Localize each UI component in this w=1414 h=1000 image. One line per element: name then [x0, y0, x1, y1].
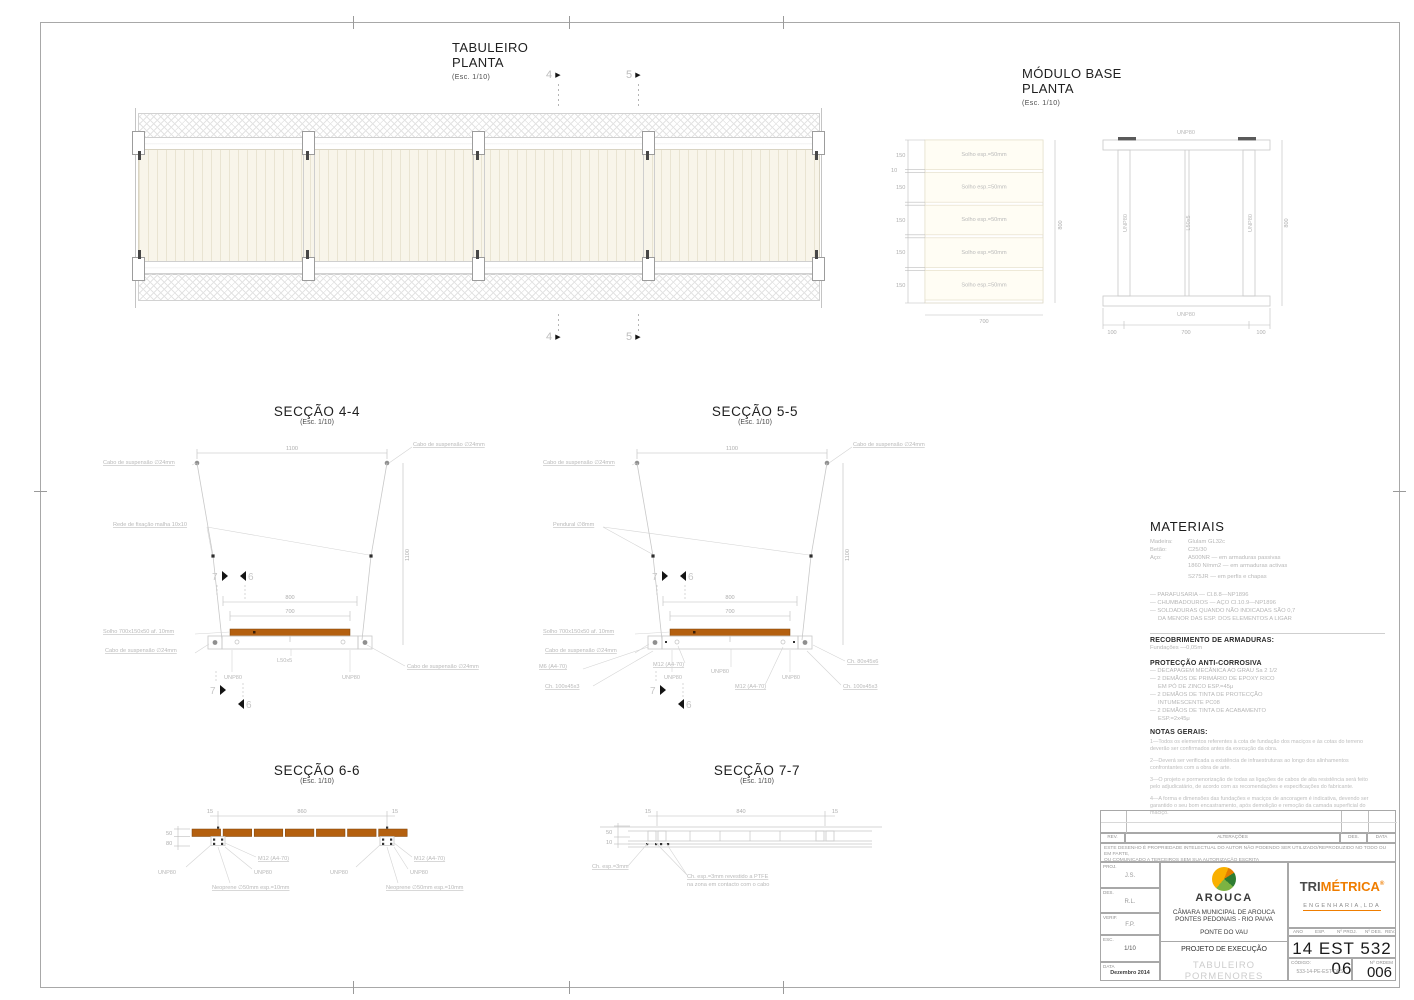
sec77-title: SECÇÃO 7-7 (Esc. 1/10): [677, 763, 837, 785]
ch80-label: Ch. 80x45x6: [847, 659, 878, 665]
rev-header: REV.: [1100, 833, 1125, 843]
m12-label-l: M12 (A4-70): [653, 662, 684, 668]
ordem-number: 006: [1367, 964, 1392, 981]
neoprene-label: Neoprene ∅50mm esp.=10mm: [386, 884, 464, 891]
sec55-dims: 1100 1100 800 700: [637, 446, 851, 645]
materiais-table: Madeira:Glulam GL32c Betão:C25/30 Aço:A5…: [1150, 538, 1385, 581]
sec77-dims: 15 840 15 50 10: [606, 809, 838, 848]
sec55-deck: [648, 629, 812, 649]
module-joint: [303, 149, 315, 261]
dim-100: 100: [1107, 330, 1116, 336]
notas-gerais: NOTAS GERAIS: 1—Todos os elementos refer…: [1150, 729, 1385, 817]
dim-1100-v: 1100: [845, 549, 851, 561]
dim-1100: 1100: [726, 446, 738, 452]
svg-text:6: 6: [686, 700, 692, 711]
mat-value: A500NR — em armaduras passivas: [1188, 555, 1280, 561]
dim-800: 800: [285, 595, 294, 601]
dim-1100: 1100: [286, 446, 298, 452]
modulo-title-line2: PLANTA: [1022, 81, 1122, 96]
border-tick: [783, 16, 784, 29]
border-tick: [353, 16, 354, 29]
neoprene-label: Neoprene ∅50mm esp.=10mm: [212, 884, 290, 891]
svg-text:7: 7: [652, 572, 658, 583]
client-line2: PONTES PEDONAIS - RIO PAIVA: [1161, 916, 1287, 923]
plan-drawing: [138, 108, 818, 308]
sec77-drawing: 15 840 15 50 10 Ch. esp.=3mm Ch. esp.=3m…: [590, 793, 890, 908]
modulo-scale: (Esc. 1/10): [1022, 96, 1122, 111]
dim-15: 15: [392, 809, 398, 815]
title-block: REV. ALTERAÇÕES DES. DATA ESTE DESENHO É…: [1100, 810, 1396, 981]
codigo-cell: CÓDIGO: 533-14-PE-EST-DES: [1288, 958, 1352, 981]
dim-800: 800: [1284, 218, 1290, 227]
materiais-block: MATERIAIS Madeira:Glulam GL32c Betão:C25…: [1150, 519, 1385, 822]
dim-860: 860: [297, 809, 306, 815]
svg-text:6: 6: [688, 572, 694, 583]
mat-value: S275JR — em perfis e chapas: [1188, 574, 1267, 580]
dim-150: 150: [896, 250, 905, 256]
dim-800: 800: [725, 595, 734, 601]
post: [642, 257, 655, 281]
dim-700: 700: [979, 319, 988, 325]
revision-rows: [1100, 810, 1396, 833]
trimetrica-cell: TRIMÉTRICA® ENGENHARIA,LDA: [1288, 862, 1396, 928]
cut-line: [638, 84, 639, 106]
sec66-drawing: 15 860 15 50 80 UNP80 M12 (A4-70) UNP80 …: [150, 793, 500, 908]
modulo-planks: Solho esp.=50mm Solho esp.=50mm Solho es…: [925, 140, 1043, 303]
modulo-frame: UNP80 UNP80 UNP80 UNP80 L50x5: [1103, 130, 1270, 318]
cut-line: [638, 314, 639, 332]
sec44-title: SECÇÃO 4-4 (Esc. 1/10): [237, 404, 397, 426]
border-tick: [353, 981, 354, 994]
joint-tick: [476, 151, 479, 160]
cut-marker-5-bottom: 5 ▶: [626, 332, 641, 343]
post: [812, 131, 825, 155]
m12-label: M12 (A4-70): [414, 856, 445, 862]
dim-150: 150: [896, 185, 905, 191]
cable-label-bl: Cabo de suspensão ∅24mm: [105, 647, 177, 654]
cable-label-bl: Cabo de suspensão ∅24mm: [545, 647, 617, 654]
unp80-label: UNP80: [224, 675, 242, 681]
ch3-ptfe-label-1: Ch. esp.=3mm revestido a PTFE: [687, 874, 769, 880]
unp80-label: UNP80: [342, 675, 360, 681]
plan-title-line1: TABULEIRO: [452, 40, 528, 55]
solho-label: Solho 700x150x50 af. 10mm: [543, 629, 615, 635]
dim-840: 840: [736, 809, 745, 815]
plan-scale: (Esc. 1/10): [452, 70, 528, 85]
sec44-drawing: 1100 1100 800 700 Cabo de suspensão ∅24m…: [95, 425, 515, 725]
dim-700: 700: [725, 609, 734, 615]
drawing-number-cell: 14 EST 532 06: [1288, 936, 1396, 958]
plank-label: Solho esp.=50mm: [961, 250, 1007, 256]
joint-tick: [815, 151, 818, 160]
joint-tick: [306, 151, 309, 160]
svg-text:7: 7: [212, 572, 218, 583]
border-tick: [783, 981, 784, 994]
sec44-deck: [208, 629, 372, 649]
dim-gap: 10: [891, 168, 897, 174]
esc-cell: ESC. 1/10: [1100, 935, 1160, 962]
dim-15: 15: [645, 809, 651, 815]
joint-tick: [646, 151, 649, 160]
unp80-label: UNP80: [330, 870, 348, 876]
sec55-title: SECÇÃO 5-5 (Esc. 1/10): [675, 404, 835, 426]
dim-1100-v: 1100: [405, 549, 411, 561]
plank-label: Solho esp.=50mm: [961, 217, 1007, 223]
border-tick: [34, 491, 47, 492]
ordem-cell: Nº ORDEM 006: [1352, 958, 1396, 981]
m12-label-r: M12 (A4-70): [735, 684, 766, 690]
unp80-label: UNP80: [711, 669, 729, 675]
solho-label: Solho 700x150x50 af. 10mm: [103, 629, 175, 635]
sec44-dims: 1100 1100 800 700: [197, 446, 411, 645]
sec55-labels: Cabo de suspensão ∅24mm Cabo de suspensã…: [539, 441, 925, 690]
dim-15: 15: [207, 809, 213, 815]
sec44-labels: Cabo de suspensão ∅24mm Cabo de suspensã…: [103, 441, 485, 681]
plank-label: Solho esp.=50mm: [961, 185, 1007, 191]
dim-80: 80: [166, 841, 172, 847]
data-cell: DATA Dezembro 2014: [1100, 962, 1160, 981]
mat-label: Madeira:: [1150, 538, 1188, 546]
unp80-label: UNP80: [1177, 312, 1195, 318]
client-line1: CÂMARA MUNICIPAL DE AROUCA: [1161, 909, 1287, 916]
border-tick: [1393, 491, 1406, 492]
cable-label-br: Cabo de suspensão ∅24mm: [407, 663, 479, 670]
cut-line: [558, 84, 559, 106]
cable-label-tr: Cabo de suspensão ∅24mm: [853, 441, 925, 448]
ch100-label-r: Ch. 100x45x3: [843, 684, 878, 690]
joint-tick: [138, 250, 141, 259]
unp80-label: UNP80: [1248, 214, 1254, 232]
post: [302, 257, 315, 281]
trimetrica-sub: ENGENHARIA,LDA: [1303, 903, 1380, 911]
unp80-label: UNP80: [158, 870, 176, 876]
module-joint: [643, 149, 655, 261]
unp80-label: UNP80: [254, 870, 272, 876]
joint-tick: [306, 250, 309, 259]
cut-marker-5-top: 5 ▶: [626, 70, 641, 81]
joint-tick: [476, 250, 479, 259]
materiais-title: MATERIAIS: [1150, 519, 1385, 534]
drawing-subject-1: TABULEIRO: [1161, 960, 1287, 971]
border-tick: [569, 16, 570, 29]
alteracoes-header: ALTERAÇÕES: [1125, 833, 1340, 843]
arouca-wordmark: AROUCA: [1161, 892, 1287, 904]
recobrimento: RECOBRIMENTO DE ARMADURAS: Fundações —0,…: [1150, 633, 1385, 652]
materiais-bullets: — PARAFUSARIA — Cl.8.8—NP1896 — CHUMBADO…: [1150, 591, 1385, 623]
ch3-ptfe-label-2: na zona em contacto com o cabo: [687, 882, 769, 888]
unp80-label: UNP80: [1123, 214, 1129, 232]
cable-label-tl: Cabo de suspensão ∅24mm: [543, 459, 615, 466]
drawing-subject-2: PORMENORES: [1161, 971, 1287, 982]
cut-arrow-icon: ▶: [635, 332, 640, 343]
plank-label: Solho esp.=50mm: [961, 152, 1007, 158]
sec55-drawing: 1100 1100 800 700 Cabo de suspensão ∅24m…: [535, 425, 955, 725]
joint-tick: [646, 250, 649, 259]
mat-value: C25/30: [1188, 547, 1207, 553]
plan-title-line2: PLANTA: [452, 55, 528, 70]
dim-700: 700: [1181, 330, 1190, 336]
plan-title: TABULEIRO PLANTA (Esc. 1/10): [452, 40, 528, 85]
cut-line: [558, 314, 559, 332]
mat-label: Betão:: [1150, 546, 1188, 554]
mat-value: Glulam GL32c: [1188, 539, 1225, 545]
sec77-deck: [600, 827, 882, 847]
unp80-label: UNP80: [1177, 130, 1195, 136]
post: [132, 257, 145, 281]
owner-cell: AROUCA CÂMARA MUNICIPAL DE AROUCA PONTES…: [1160, 862, 1288, 981]
mesh-label: Rede de fixação malha 10x10: [113, 522, 187, 528]
bridge-name: PONTE DO VAU: [1161, 929, 1287, 936]
modulo-base-drawing: Solho esp.=50mm Solho esp.=50mm Solho es…: [890, 125, 1290, 340]
dim-10: 10: [606, 840, 612, 846]
number-headers: ANO ESP. Nº PROJ. Nº DES. REV.: [1288, 928, 1396, 936]
ch100-label-l: Ch. 100x45x3: [545, 684, 580, 690]
ch3-label: Ch. esp.=3mm: [592, 864, 629, 870]
sec66-planks: [192, 829, 407, 837]
trimetrica-logo: TRIMÉTRICA®: [1289, 879, 1395, 894]
cut-arrow-icon: ▶: [555, 332, 560, 343]
disclaimer: ESTE DESENHO É PROPRIEDADE INTELECTUAL D…: [1100, 843, 1396, 862]
unp80-label: UNP80: [410, 870, 428, 876]
module-joint: [473, 149, 485, 261]
data-header: DATA: [1367, 833, 1396, 843]
dim-800: 800: [1058, 220, 1064, 229]
svg-text:7: 7: [650, 686, 656, 697]
verif-cell: VERIF. F.P.: [1100, 913, 1160, 935]
dim-50: 50: [606, 830, 612, 836]
cable-label-tl: Cabo de suspensão ∅24mm: [103, 459, 175, 466]
proteccao: PROTECÇÃO ANTI-CORROSIVA — DECAPAGEM MEC…: [1150, 660, 1385, 723]
cut-marker-4-bottom: 4 ▶: [546, 332, 561, 343]
joint-tick: [815, 250, 818, 259]
dim-150: 150: [896, 218, 905, 224]
sec66-labels: UNP80 M12 (A4-70) UNP80 Neoprene ∅50mm e…: [158, 843, 464, 891]
mat-label: Aço:: [1150, 554, 1188, 562]
project-phase: PROJETO DE EXECUÇÃO: [1161, 941, 1287, 953]
m12-label: M12 (A4-70): [258, 856, 289, 862]
dim-15: 15: [832, 809, 838, 815]
border-tick: [569, 981, 570, 994]
pendural-label: Pendural ∅8mm: [553, 521, 595, 528]
cable-label-tr: Cabo de suspensão ∅24mm: [413, 441, 485, 448]
cut-arrow-icon: ▶: [635, 70, 640, 81]
dim-150: 150: [896, 283, 905, 289]
plank-label: Solho esp.=50mm: [961, 282, 1007, 288]
des-header: DES.: [1340, 833, 1367, 843]
mat-value: 1860 N/mm2 — em armaduras activas: [1188, 563, 1287, 569]
post: [472, 257, 485, 281]
modulo-frame-dims: 100 700 100 800: [1103, 140, 1290, 336]
sec77-labels: Ch. esp.=3mm Ch. esp.=3mm revestido a PT…: [592, 843, 769, 888]
modulo-title-line1: MÓDULO BASE: [1022, 66, 1122, 81]
dim-100: 100: [1256, 330, 1265, 336]
modulo-title: MÓDULO BASE PLANTA (Esc. 1/10): [1022, 66, 1122, 111]
svg-text:6: 6: [248, 572, 254, 583]
svg-text:7: 7: [210, 686, 216, 697]
dim-150: 150: [896, 153, 905, 159]
dim-50: 50: [166, 831, 172, 837]
unp80-label: UNP80: [782, 675, 800, 681]
l50x5-label: L50x5: [1186, 215, 1192, 230]
proj-cell: PROJ. J.S.: [1100, 862, 1160, 888]
post: [812, 257, 825, 281]
unp80-label: UNP80: [664, 675, 682, 681]
m6-label: M6 (A4-70): [539, 664, 567, 670]
sec66-title: SECÇÃO 6-6 (Esc. 1/10): [237, 763, 397, 785]
arouca-logo: [1212, 867, 1236, 891]
dim-700: 700: [285, 609, 294, 615]
cut-arrow-icon: ▶: [555, 70, 560, 81]
des-cell: DES. R.L.: [1100, 888, 1160, 913]
cut-marker-4-top: 4 ▶: [546, 70, 561, 81]
l50x5-label: L50x5: [277, 658, 292, 664]
svg-text:6: 6: [246, 700, 252, 711]
joint-tick: [138, 151, 141, 160]
